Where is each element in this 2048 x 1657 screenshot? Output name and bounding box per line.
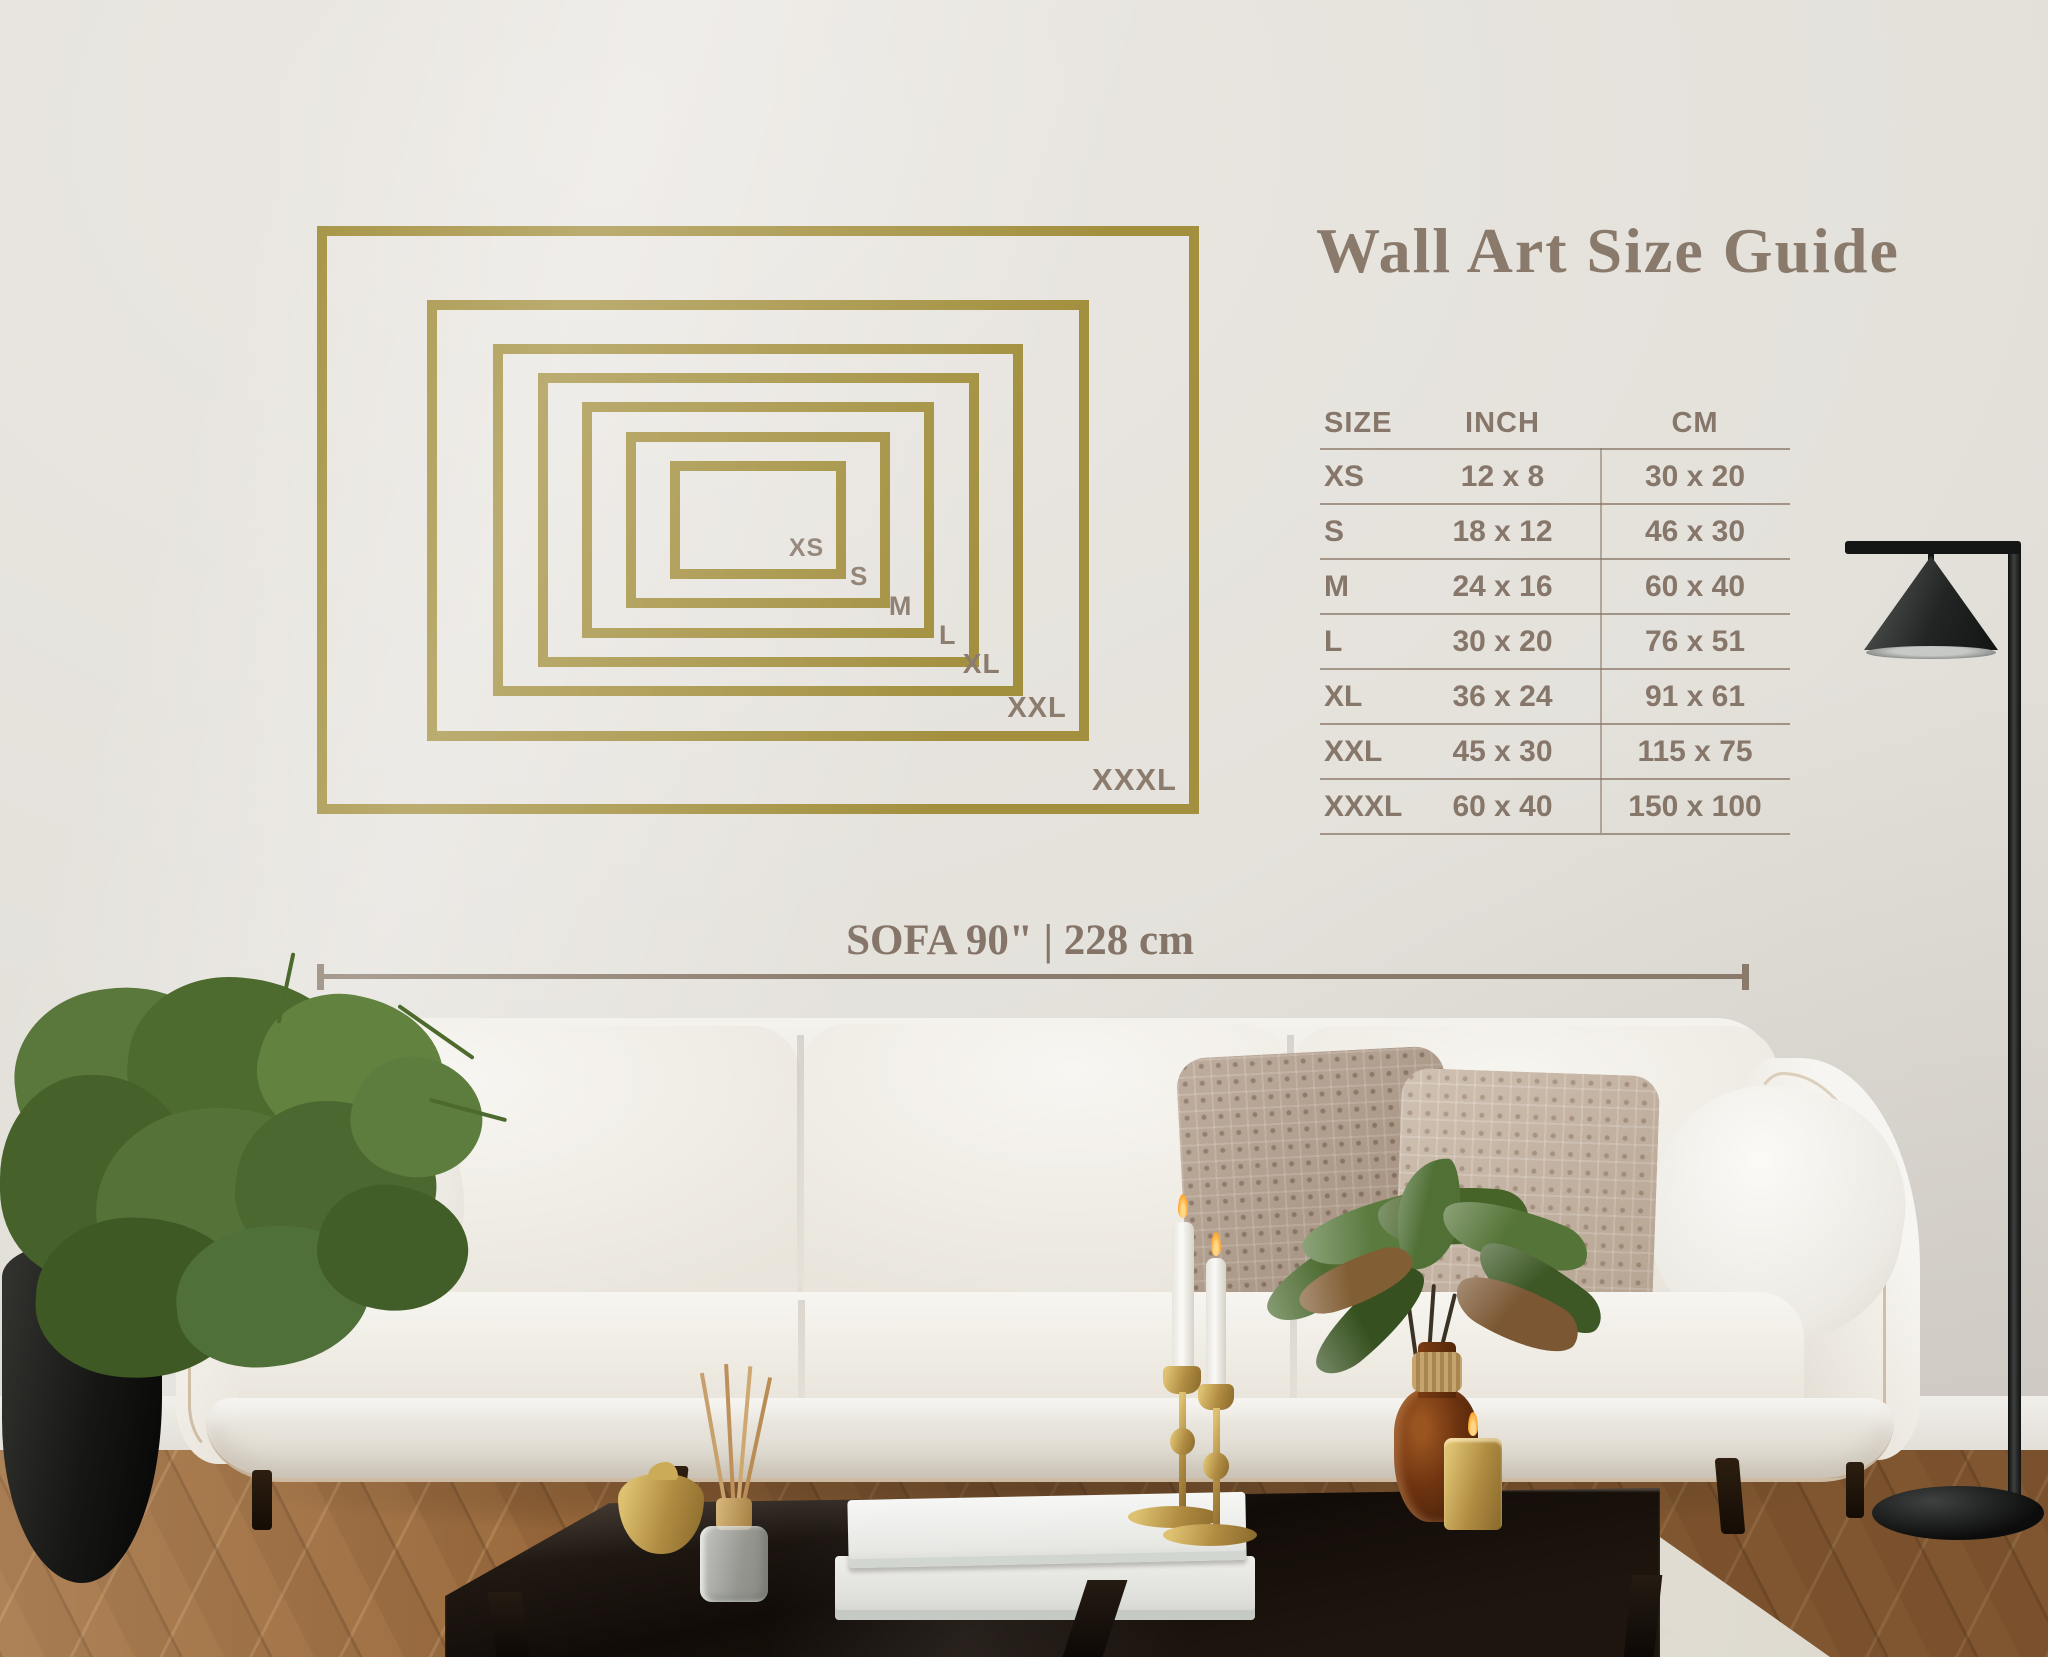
vase-rope-band	[1412, 1352, 1462, 1392]
candle-flame	[1178, 1194, 1188, 1218]
diffuser-reeds	[724, 1364, 736, 1512]
gold-bowl-finial	[648, 1462, 678, 1480]
gold-candle	[1444, 1438, 1502, 1530]
candlestick-bead	[1170, 1428, 1195, 1455]
candlestick-cup	[1163, 1366, 1201, 1394]
taper-candle	[1172, 1222, 1194, 1372]
candle-flame	[1211, 1232, 1221, 1256]
candle-flame	[1468, 1412, 1478, 1436]
diffuser-reeds	[700, 1373, 728, 1512]
coffee-table	[0, 0, 2048, 1657]
taper-candle	[1206, 1258, 1226, 1390]
wall-art-size-guide-scene: XSSMLXLXXLXXXL Wall Art Size Guide SIZE …	[0, 0, 2048, 1657]
candlestick-cup	[1198, 1384, 1234, 1410]
candlestick-base	[1163, 1524, 1257, 1546]
candlestick-bead	[1203, 1452, 1229, 1480]
diffuser-bottle	[700, 1526, 768, 1602]
